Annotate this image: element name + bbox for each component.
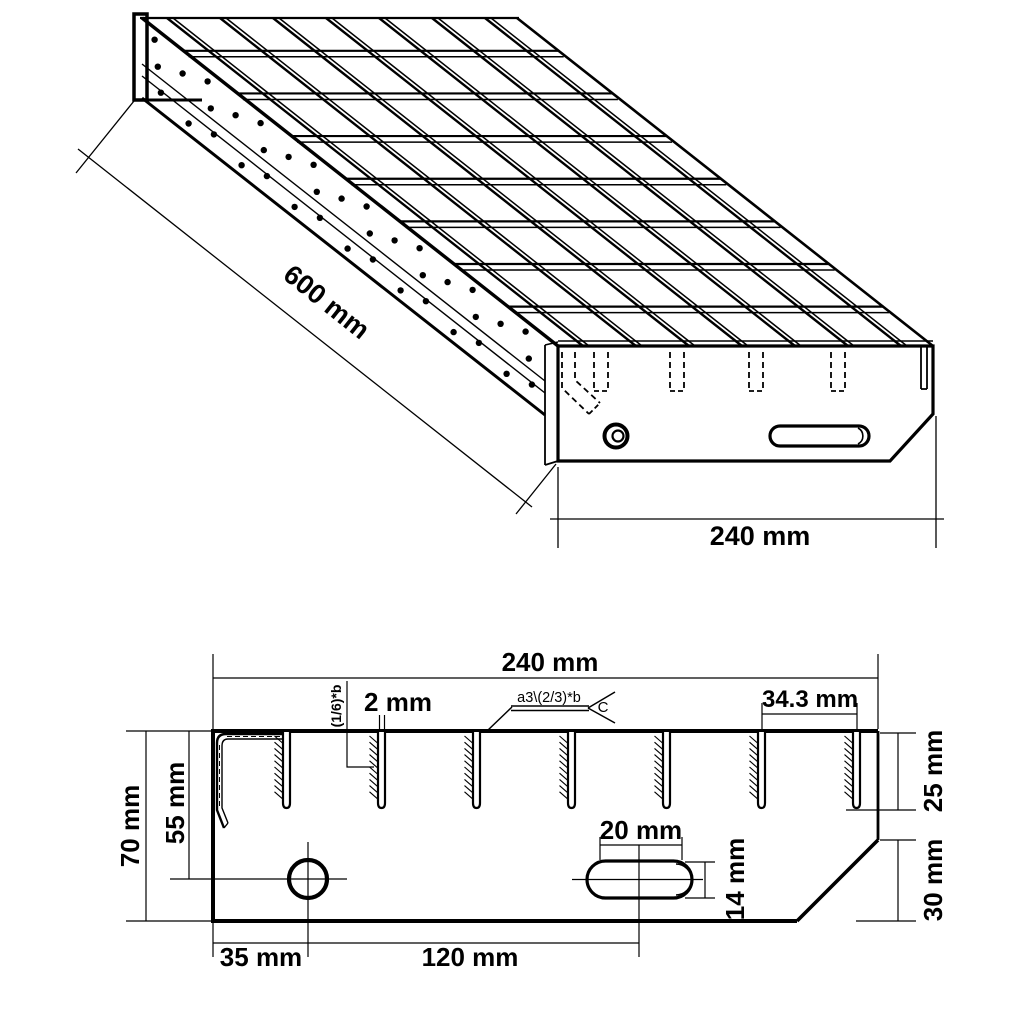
perforation-dot xyxy=(397,287,403,293)
bearing-bar-slot xyxy=(283,732,290,808)
right-end-plate xyxy=(545,341,933,465)
perforation-dot xyxy=(367,230,373,236)
perforation-dot xyxy=(469,287,475,293)
perforation-dot xyxy=(344,245,350,251)
perforation-dot xyxy=(155,63,161,69)
dim-label-slot-length: 20 mm xyxy=(600,815,682,845)
perforation-dot xyxy=(291,204,297,210)
dim-label-hole-offset-left: 35 mm xyxy=(220,942,302,972)
weld-leader xyxy=(487,707,512,731)
perforation-dot xyxy=(416,245,422,251)
perforation-dot xyxy=(261,147,267,153)
bearing-bar-slot xyxy=(853,732,860,808)
perforation-dot xyxy=(317,215,323,221)
dim-label-plate-height: 70 mm xyxy=(115,785,145,867)
slotted-hole xyxy=(770,426,869,446)
technical-drawing: 600 mm 240 mm xyxy=(0,0,1024,1024)
perforation-dot xyxy=(151,37,157,43)
perforation-dot xyxy=(529,381,535,387)
weld-throat-note: (1/6)*b xyxy=(328,685,344,728)
weld-spec-note: a3\(2/3)*b xyxy=(517,690,581,706)
perforation-dot xyxy=(444,279,450,285)
perforation-dot xyxy=(473,314,479,320)
dim-label-end-width: 240 mm xyxy=(710,521,811,551)
plate-outline xyxy=(211,729,878,957)
grating-top-face xyxy=(142,18,933,346)
perforation-dot xyxy=(185,120,191,126)
perforation-dot xyxy=(204,78,210,84)
bearing-bar-slot xyxy=(378,732,385,808)
perforation-dot xyxy=(338,195,344,201)
weld-tail-letter: C xyxy=(598,699,609,716)
perforation-dot xyxy=(363,203,369,209)
perforation-dot xyxy=(450,329,456,335)
left-end-plate xyxy=(134,14,147,100)
dim-label-bar-thickness: 2 mm xyxy=(364,687,432,717)
extension-line xyxy=(76,101,134,173)
perforation-dot xyxy=(503,371,509,377)
bearing-bar-slot xyxy=(473,732,480,808)
perforation-dot xyxy=(526,355,532,361)
bearing-bar-slot xyxy=(568,732,575,808)
extension-line xyxy=(516,464,556,514)
dim-label-hole-to-slot: 120 mm xyxy=(422,942,519,972)
dim-label-slot-width: 14 mm xyxy=(720,838,750,920)
perforation-dot xyxy=(211,131,217,137)
dim-label-slot-depth: 25 mm xyxy=(918,730,948,812)
perforation-dot xyxy=(522,328,528,334)
dim-label-bar-pitch: 34.3 mm xyxy=(762,686,858,713)
perforation-dot xyxy=(391,237,397,243)
perforation-dot xyxy=(314,189,320,195)
perforation-dot xyxy=(208,105,214,111)
isometric-view: 600 mm 240 mm xyxy=(76,14,944,551)
bearing-bar-slot xyxy=(758,732,765,808)
dim-label-hole-offset-top: 55 mm xyxy=(160,762,190,844)
perforation-dot xyxy=(179,70,185,76)
perforation-dot xyxy=(423,298,429,304)
perforation-dot xyxy=(370,256,376,262)
perforation-dot xyxy=(420,272,426,278)
perforation-dot xyxy=(310,162,316,168)
perforation-dot xyxy=(264,173,270,179)
perforation-dot xyxy=(257,120,263,126)
bearing-bar-slot xyxy=(663,732,670,808)
end-plate-profile-view: 240 mm 2 mm (1/6)*b a3\(2/3)*b C 34.3 mm xyxy=(115,647,948,972)
perforation-dot xyxy=(497,321,503,327)
perforation-dot xyxy=(158,90,164,96)
perforation-dot xyxy=(476,340,482,346)
dim-label-bevel-height: 30 mm xyxy=(918,839,948,921)
dim-label-width: 240 mm xyxy=(502,647,599,677)
end-plate-face xyxy=(558,346,933,461)
perforation-dot xyxy=(285,154,291,160)
perforation-dot xyxy=(232,112,238,118)
perforation-dot xyxy=(238,162,244,168)
